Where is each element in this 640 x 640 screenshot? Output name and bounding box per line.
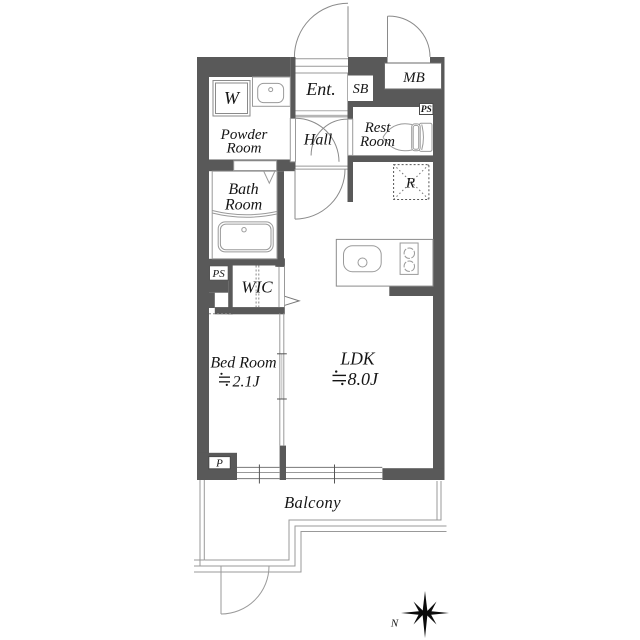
svg-text:Room: Room [359, 134, 395, 150]
svg-text:LDK: LDK [339, 349, 375, 369]
svg-text:8.0J: 8.0J [348, 369, 380, 389]
svg-text:PS: PS [421, 105, 432, 115]
svg-text:PS: PS [211, 268, 225, 280]
svg-text:P: P [215, 457, 223, 469]
svg-text:N: N [390, 617, 399, 629]
svg-text:Balcony: Balcony [284, 493, 341, 512]
svg-text:SB: SB [353, 82, 369, 97]
svg-text:Room: Room [224, 197, 262, 214]
svg-text:W: W [224, 88, 241, 108]
svg-text:MB: MB [402, 70, 425, 86]
svg-text:Bath: Bath [228, 181, 258, 198]
svg-text:Hall: Hall [303, 132, 333, 149]
svg-text:Ent.: Ent. [305, 79, 336, 99]
svg-text:Bed Room: Bed Room [210, 355, 276, 372]
svg-text:Room: Room [226, 140, 262, 156]
svg-text:R: R [405, 175, 415, 191]
svg-text:2.1J: 2.1J [233, 374, 261, 391]
svg-text:WIC: WIC [241, 277, 273, 296]
